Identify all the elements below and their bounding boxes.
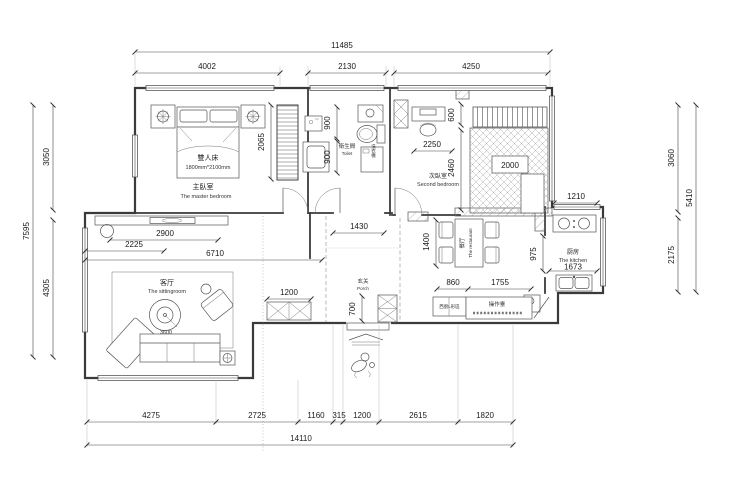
toilet-label-en: Toilet bbox=[342, 151, 353, 156]
living-room: 客厅 The sittingroom 3600 bbox=[85, 216, 322, 369]
dim-top-3: 4250 bbox=[462, 62, 480, 71]
dim-bath-a: 900 bbox=[323, 116, 332, 130]
window bbox=[146, 86, 274, 91]
second-bedroom-label-zh: 次臥室 bbox=[429, 172, 447, 180]
window bbox=[550, 96, 555, 201]
living-label-en: The sittingroom bbox=[148, 289, 186, 295]
dim-left-total: 7595 bbox=[22, 222, 31, 240]
dim-left-1: 3050 bbox=[42, 148, 51, 166]
porch-label-en: Porch bbox=[357, 286, 369, 291]
bed-label: 雙人床 bbox=[198, 153, 219, 162]
entry-door bbox=[347, 323, 389, 378]
dim-bed2-600: 600 bbox=[447, 108, 456, 122]
second-bedroom: 2000 次臥室 Second bedroom 600 2250 2460 bbox=[394, 100, 548, 213]
dining-room: 餐厅 The restaurant 1400 860 1755 西廚L形區 操作… bbox=[422, 219, 532, 319]
dim-top-1: 4002 bbox=[198, 62, 216, 71]
floor-plan-svg: 雙人床 1800mm*2100mm 主臥室 The master bedroom… bbox=[0, 0, 740, 500]
side-cabinet: 西廚L形區 bbox=[433, 297, 466, 316]
stove bbox=[553, 215, 596, 232]
dim-top-total: 11485 bbox=[331, 41, 353, 50]
dim-bath-b: 900 bbox=[323, 150, 332, 164]
dim-bottom-5: 1200 bbox=[353, 411, 371, 420]
dim-din-860: 860 bbox=[446, 278, 460, 287]
dimensions-right: 5410 3060 2175 bbox=[667, 105, 696, 292]
dim-bottom-3: 1160 bbox=[307, 411, 325, 420]
dim-liv-2225: 2225 bbox=[125, 240, 143, 249]
dim-liv-1200: 1200 bbox=[280, 288, 298, 297]
dim-top-2: 2130 bbox=[338, 62, 356, 71]
side-table bbox=[201, 284, 211, 294]
dim-din-1400: 1400 bbox=[422, 233, 431, 251]
dim-hall-1430: 1430 bbox=[350, 222, 368, 231]
dim-din-1755: 1755 bbox=[491, 278, 509, 287]
dim-kit-975: 975 bbox=[529, 247, 538, 261]
counter-label: 操作臺 bbox=[489, 300, 506, 308]
second-bedroom-label-en: Second bedroom bbox=[417, 182, 459, 188]
master-bedroom: 雙人床 1800mm*2100mm 主臥室 The master bedroom… bbox=[151, 105, 298, 200]
window bbox=[98, 376, 238, 381]
sofa: 3600 bbox=[106, 317, 220, 368]
toilet-room: 洗衣機 衛生間 Toilet 900 900 bbox=[303, 105, 385, 173]
kitchen-label-zh: 厨房 bbox=[567, 248, 579, 256]
bed-size-label: 1800mm*2100mm bbox=[186, 165, 231, 171]
counter: 操作臺 bbox=[466, 297, 532, 319]
shoe-cabinet bbox=[378, 295, 397, 322]
dim-bed2-bed: 2000 bbox=[501, 161, 519, 170]
dining-chair bbox=[439, 222, 453, 238]
floor-plan-page: 雙人床 1800mm*2100mm 主臥室 The master bedroom… bbox=[0, 0, 740, 500]
dim-kit-1210: 1210 bbox=[567, 192, 585, 201]
armchair bbox=[200, 288, 234, 321]
desk bbox=[412, 107, 445, 136]
wardrobe bbox=[277, 105, 298, 180]
washer-label: 洗衣機 bbox=[371, 143, 377, 159]
washing-machine: 洗衣機 bbox=[361, 143, 383, 172]
dim-bottom-6: 2615 bbox=[409, 411, 427, 420]
dim-bottom-1: 4275 bbox=[142, 411, 160, 420]
headboard-shelf bbox=[473, 107, 547, 127]
porch: 玄关 Porch 700 1430 bbox=[333, 222, 397, 322]
toilet-door bbox=[315, 188, 340, 213]
dim-left-2: 4305 bbox=[42, 279, 51, 297]
dim-right-total: 5410 bbox=[685, 189, 694, 207]
sofa-side-table bbox=[220, 351, 235, 365]
dim-bottom-total: 14110 bbox=[290, 434, 312, 443]
cabinet-1200: 1200 bbox=[267, 288, 311, 320]
window bbox=[133, 135, 138, 177]
dim-bed2-2250: 2250 bbox=[423, 140, 441, 149]
dim-right-1: 3060 bbox=[667, 149, 676, 167]
window bbox=[554, 205, 600, 210]
dim-porch-700: 700 bbox=[348, 302, 357, 316]
dining-chair bbox=[485, 222, 499, 238]
dim-wardrobe: 2065 bbox=[257, 133, 266, 151]
threshold-hatch bbox=[408, 212, 428, 221]
window bbox=[83, 228, 88, 332]
window bbox=[601, 218, 606, 286]
porch-label-zh: 玄关 bbox=[357, 277, 369, 285]
window bbox=[310, 86, 384, 91]
dim-sofa: 3600 bbox=[160, 330, 172, 336]
shower-basin bbox=[358, 105, 383, 122]
toilet-label-zh: 衛生間 bbox=[339, 142, 356, 150]
dim-bottom-7: 1820 bbox=[476, 411, 494, 420]
dimensions-top: 11485 4002 2130 4250 bbox=[135, 41, 550, 86]
dim-bottom-4: 315 bbox=[332, 411, 346, 420]
dimensions-left: 7595 3050 4305 bbox=[22, 105, 53, 357]
dim-right-2: 2175 bbox=[667, 246, 676, 264]
second-bedroom-door bbox=[395, 188, 422, 215]
tv bbox=[150, 218, 195, 224]
person-figure bbox=[350, 353, 375, 378]
window bbox=[398, 86, 546, 91]
dining-label-en: The restaurant bbox=[468, 228, 473, 258]
coffee-table bbox=[150, 300, 181, 331]
kitchen-sink bbox=[556, 275, 592, 291]
dim-bed2-2460: 2460 bbox=[447, 159, 456, 177]
column-cabinet bbox=[394, 100, 408, 128]
dim-liv-6710: 6710 bbox=[206, 249, 224, 258]
master-bedroom-door bbox=[283, 188, 308, 213]
decor-circle bbox=[101, 225, 114, 238]
toilet-bowl bbox=[357, 125, 385, 143]
dining-label-zh: 餐厅 bbox=[458, 237, 466, 249]
dim-liv-2900: 2900 bbox=[156, 229, 174, 238]
dining-chair bbox=[439, 247, 453, 263]
side-cabinet-label: 西廚L形區 bbox=[439, 303, 460, 310]
dim-kit-1673: 1673 bbox=[564, 263, 582, 272]
sink-cabinet bbox=[305, 116, 322, 131]
master-bedroom-label-zh: 主臥室 bbox=[193, 182, 214, 191]
dining-chair bbox=[485, 247, 499, 263]
master-bedroom-label-en: The master bedroom bbox=[180, 194, 231, 200]
dim-bottom-2: 2725 bbox=[248, 411, 266, 420]
bed-tatami: 2000 bbox=[470, 128, 548, 213]
living-label-zh: 客厅 bbox=[160, 278, 174, 287]
